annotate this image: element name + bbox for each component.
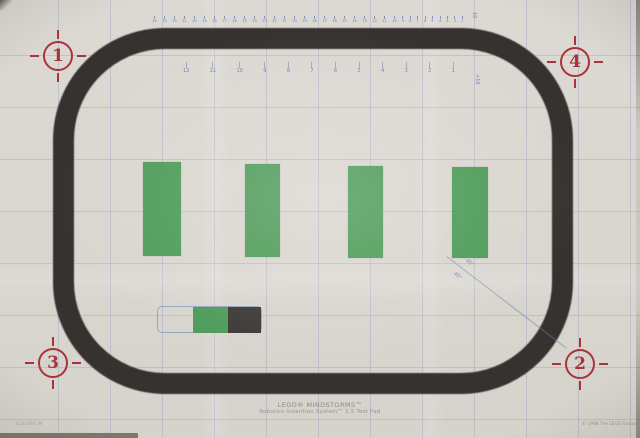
ruler-tick: 3	[446, 16, 449, 23]
ruler-tick: 4	[439, 16, 442, 23]
pad-title: LEGO® MINDSTORMS™ Robotics Invention Sys…	[0, 402, 640, 416]
ruler-tick: 15	[342, 16, 347, 23]
scale-tick: 5	[358, 62, 361, 74]
scale-tick: 1	[452, 62, 455, 74]
crosshair-tick	[57, 30, 59, 39]
scale-tick: 6	[334, 62, 337, 74]
corner-number: 2	[565, 349, 595, 379]
ruler-tick: 30	[192, 16, 197, 23]
ruler-tick: 6	[424, 16, 427, 23]
ruler-tick: 20	[292, 16, 297, 23]
ruler-tick: 19	[302, 16, 307, 23]
crosshair-tick	[57, 73, 59, 82]
crosshair-tick	[574, 79, 576, 88]
ruler-tick: 31	[182, 16, 187, 23]
ruler-tick: 28	[212, 16, 217, 23]
corner-number: 4	[560, 47, 590, 77]
copyright-text: © 1998 The LEGO Group	[582, 421, 636, 426]
pad-right-edge	[636, 0, 640, 438]
ruler-tick: 27	[222, 16, 227, 23]
crosshair-tick	[52, 337, 54, 346]
scale-tick: 7	[310, 62, 313, 74]
scale-tick: 8	[287, 62, 290, 74]
corner-marker-3: 3	[31, 341, 75, 385]
ruler-tick: 18	[312, 16, 317, 23]
corner-marker-4: 4	[553, 40, 597, 84]
ruler-tick: 2	[454, 16, 457, 23]
ruler-tick: 23	[262, 16, 267, 23]
crosshair-tick	[552, 363, 561, 365]
green-bar-2	[245, 164, 280, 257]
crosshair-tick	[30, 55, 39, 57]
pad-bottom-edge	[0, 433, 138, 438]
ruler-tick: 5	[431, 16, 434, 23]
corner-number: 3	[38, 348, 68, 378]
corner-number: 1	[43, 41, 73, 71]
crosshair-tick	[547, 61, 556, 63]
part-number: 4151465 IN	[16, 421, 42, 426]
ruler-tick: 1	[461, 16, 464, 23]
side-label-2: +10	[474, 74, 479, 85]
scale-tick: 2	[428, 62, 431, 74]
scale-tick: 4	[381, 62, 384, 74]
ruler-tick: 13	[362, 16, 367, 23]
pad-topleft-edge	[0, 0, 12, 10]
ruler-tick: 7	[416, 16, 419, 23]
ruler-tick: 11	[382, 16, 387, 23]
ruler-tick: 34	[152, 16, 157, 23]
crosshair-tick	[599, 363, 608, 365]
ruler-tick: 22	[272, 16, 277, 23]
ruler-tick: 8	[409, 16, 412, 23]
scale-tick: 11	[210, 62, 216, 74]
top-ruler: 3433323130292827262524232221201918171615…	[152, 16, 464, 23]
crosshair-tick	[594, 61, 603, 63]
ruler-tick: 26	[232, 16, 237, 23]
crosshair-tick	[25, 362, 34, 364]
pad-title-line1: LEGO® MINDSTORMS™	[0, 402, 640, 409]
side-label-1: 10	[471, 12, 476, 18]
crosshair-tick	[77, 55, 86, 57]
scale-tick: 3	[405, 62, 408, 74]
ruler-tick: 12	[372, 16, 377, 23]
crosshair-tick	[52, 380, 54, 389]
green-bar-3	[348, 166, 383, 258]
green-bar-1	[143, 162, 181, 256]
start-marker-green	[193, 307, 228, 333]
scale-tick: 10	[237, 62, 243, 74]
ruler-tick: 16	[332, 16, 337, 23]
ruler-tick: 17	[322, 16, 327, 23]
ruler-tick: 24	[252, 16, 257, 23]
scale-tick: 9	[263, 62, 266, 74]
test-pad-photo: 1432 34333231302928272625242322212019181…	[0, 0, 640, 438]
start-marker-black	[228, 307, 261, 333]
ruler-tick: 25	[242, 16, 247, 23]
ruler-tick: 29	[202, 16, 207, 23]
pad-title-line2: Robotics Invention System™ 1.5 Test Pad	[0, 409, 640, 416]
oval-track	[53, 28, 573, 394]
ruler-tick: 21	[282, 16, 287, 23]
ruler-tick: 14	[352, 16, 357, 23]
green-bar-4	[452, 167, 488, 258]
inner-scale: 121110987654321	[183, 62, 455, 74]
ruler-tick: 9	[402, 16, 405, 23]
scale-tick: 12	[183, 62, 189, 74]
ruler-tick: 10	[392, 16, 397, 23]
corner-marker-2: 2	[558, 342, 602, 386]
corner-marker-1: 1	[36, 34, 80, 78]
crosshair-tick	[579, 338, 581, 347]
crosshair-tick	[579, 381, 581, 390]
crosshair-tick	[72, 362, 81, 364]
ruler-tick: 32	[172, 16, 177, 23]
ruler-tick: 33	[162, 16, 167, 23]
crosshair-tick	[574, 36, 576, 45]
